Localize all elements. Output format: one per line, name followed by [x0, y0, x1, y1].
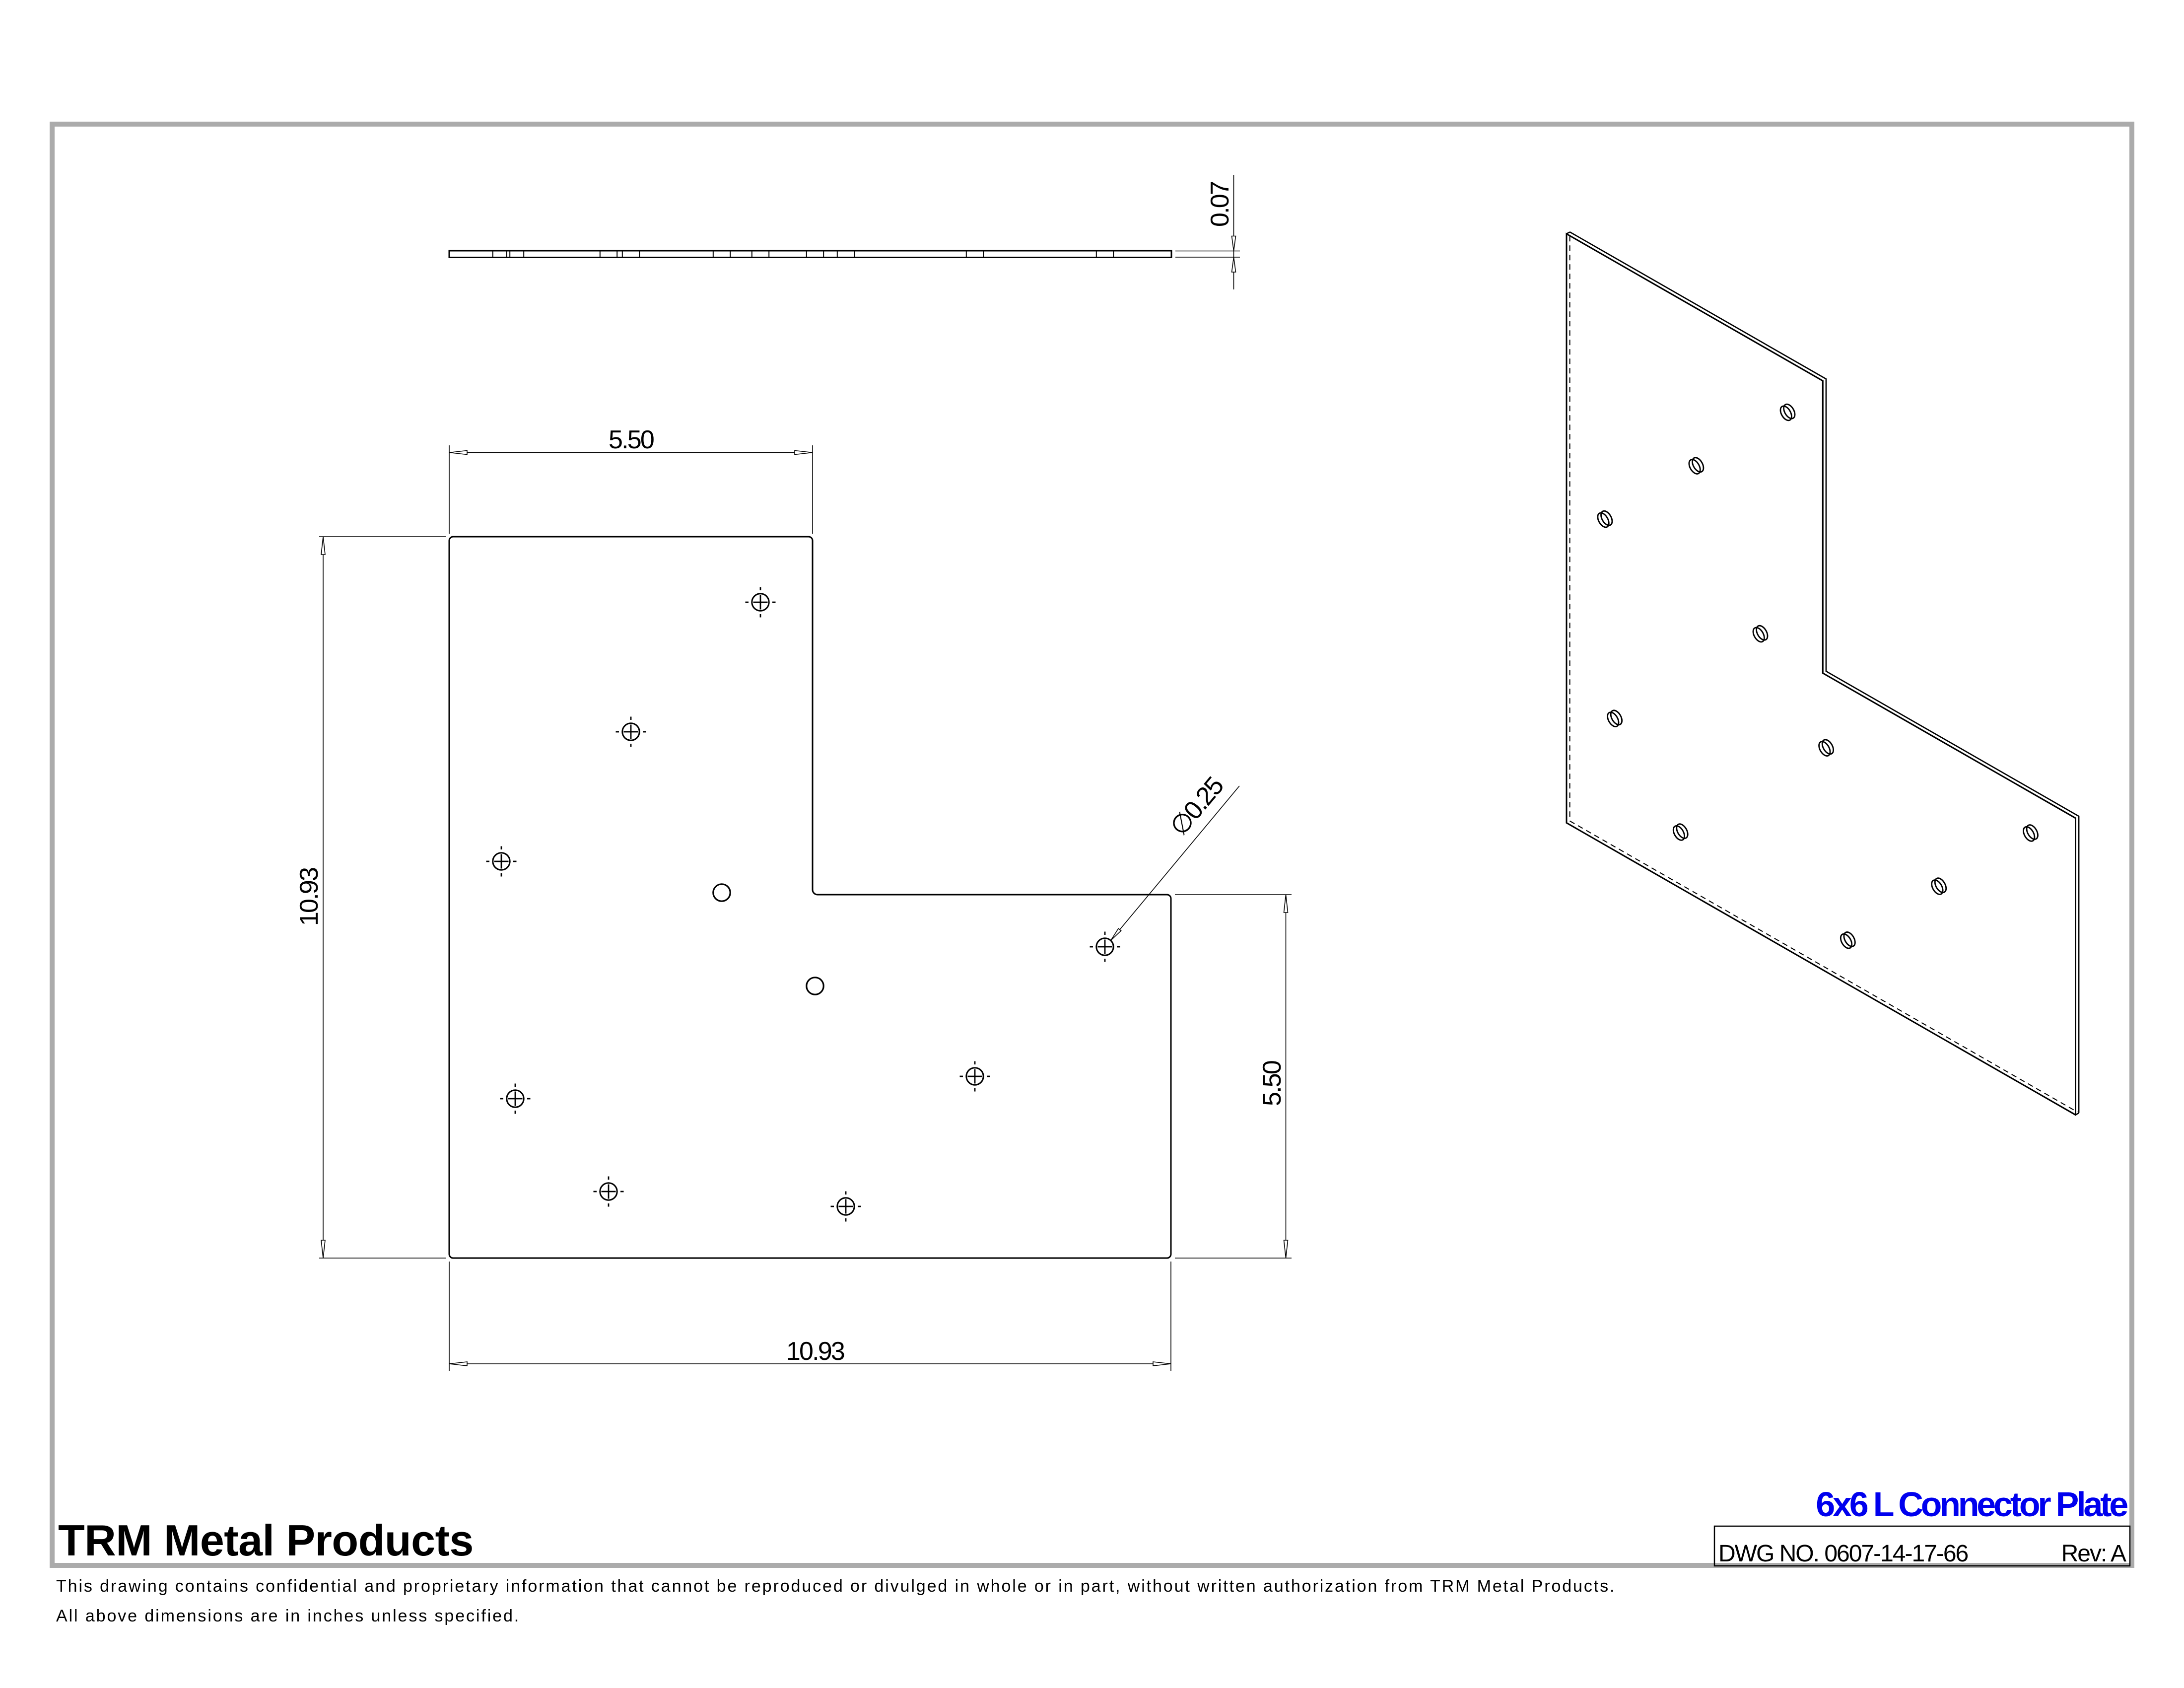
svg-text:This drawing contains confiden: This drawing contains confidential and p… — [56, 1577, 1616, 1596]
svg-text:10.93: 10.93 — [786, 1337, 844, 1366]
svg-text:0.07: 0.07 — [1206, 182, 1234, 227]
svg-text:DWG NO. 0607-14-17-66: DWG NO. 0607-14-17-66 — [1718, 1541, 1968, 1567]
svg-text:All above dimensions are in in: All above dimensions are in inches unles… — [56, 1607, 520, 1625]
svg-text:5.50: 5.50 — [609, 425, 654, 454]
svg-text:5.50: 5.50 — [1258, 1061, 1287, 1106]
svg-text:10.93: 10.93 — [295, 868, 324, 926]
svg-text:TRM Metal Products: TRM Metal Products — [58, 1516, 474, 1565]
svg-text:6x6 L Connector Plate: 6x6 L Connector Plate — [1816, 1485, 2127, 1524]
svg-text:Rev: A: Rev: A — [2061, 1541, 2126, 1567]
